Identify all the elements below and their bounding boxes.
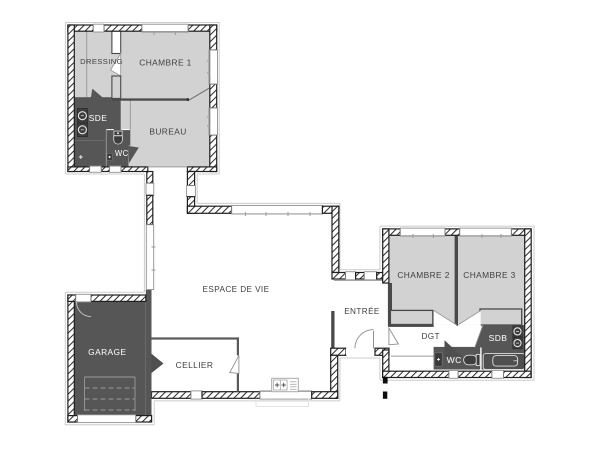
svg-text:BUREAU: BUREAU (149, 126, 186, 136)
svg-text:WC: WC (115, 149, 129, 158)
svg-text:CHAMBRE 1: CHAMBRE 1 (139, 58, 191, 68)
svg-text:CHAMBRE 2: CHAMBRE 2 (397, 270, 449, 280)
svg-text:ENTRÉE: ENTRÉE (344, 306, 380, 316)
svg-text:WC: WC (447, 355, 462, 365)
svg-text:DRESSING: DRESSING (80, 57, 123, 66)
svg-text:SDB: SDB (489, 333, 508, 343)
svg-text:GARAGE: GARAGE (88, 347, 126, 357)
svg-text:DGT: DGT (421, 332, 439, 341)
svg-text:CELLIER: CELLIER (176, 360, 214, 370)
svg-text:CHAMBRE 3: CHAMBRE 3 (463, 270, 515, 280)
svg-text:SDE: SDE (89, 113, 107, 123)
svg-text:ESPACE DE VIE: ESPACE DE VIE (203, 285, 270, 294)
